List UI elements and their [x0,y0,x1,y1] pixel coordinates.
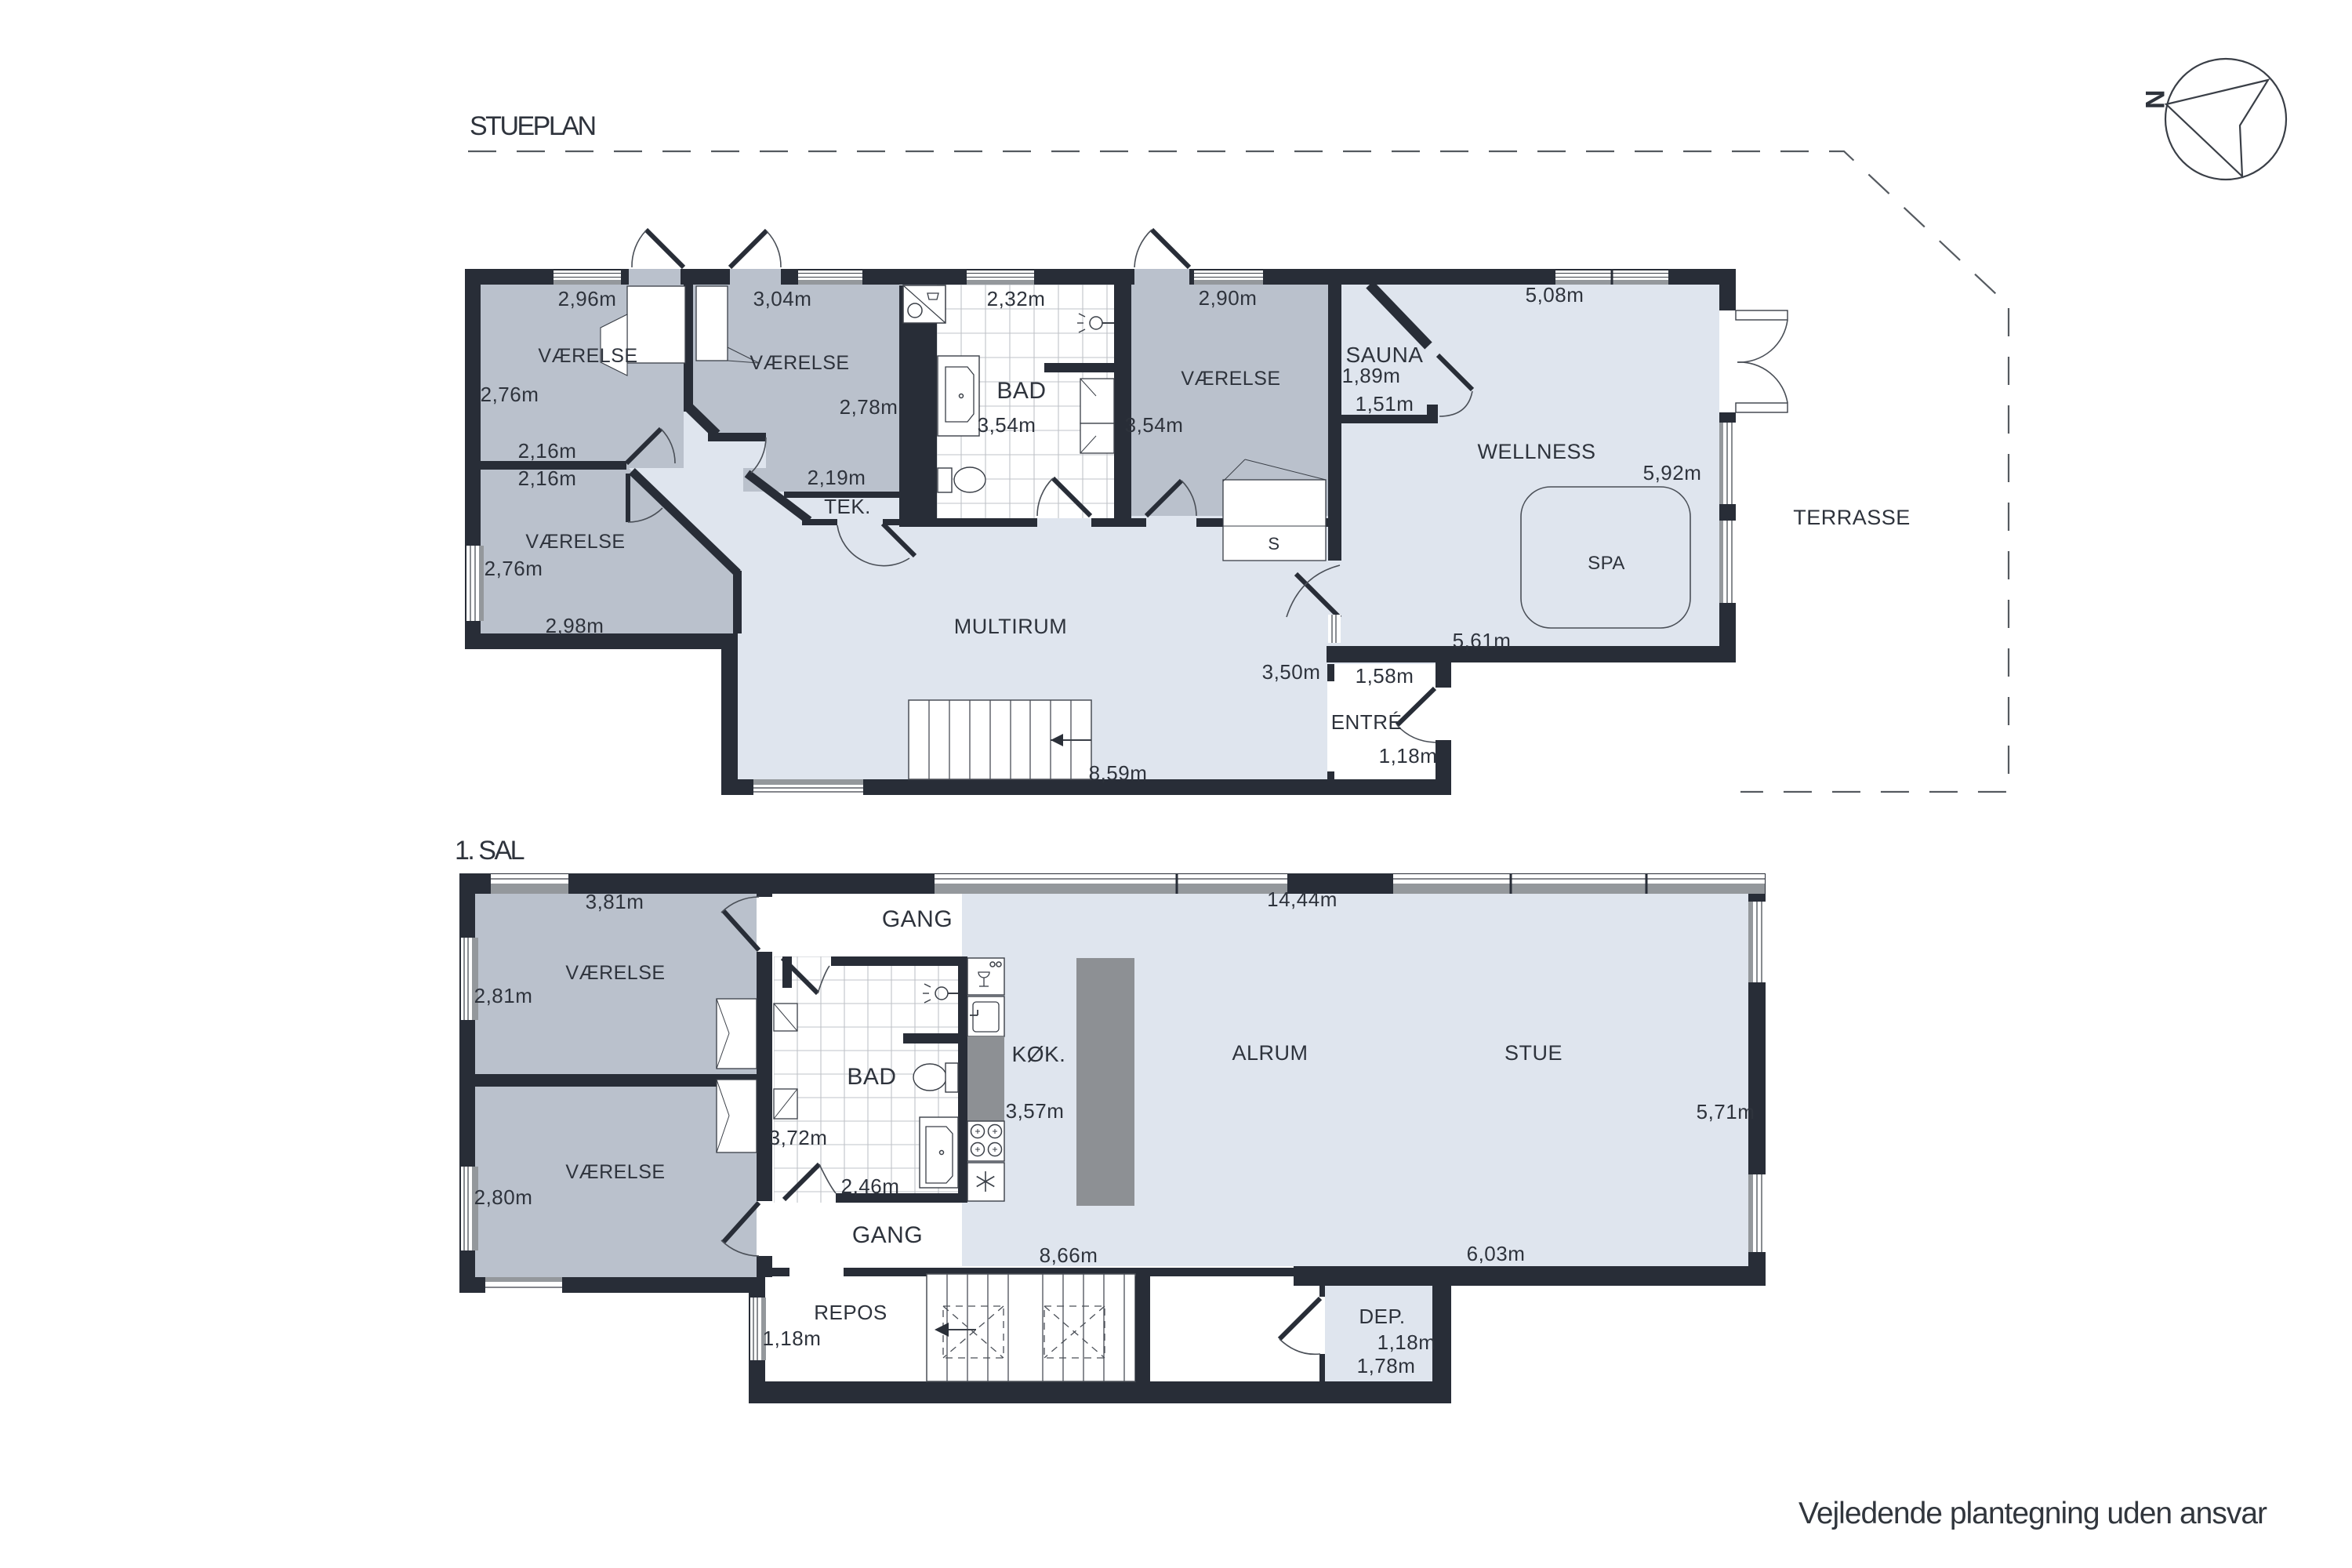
svg-text:2,96m: 2,96m [558,287,617,310]
svg-text:VÆRELSE: VÆRELSE [1181,368,1280,390]
svg-text:DEP.: DEP. [1359,1305,1405,1328]
svg-text:3,04m: 3,04m [753,287,812,310]
svg-text:5,92m: 5,92m [1643,461,1702,485]
svg-text:GANG: GANG [882,906,953,932]
svg-text:2,46m: 2,46m [841,1174,900,1198]
svg-text:8,59m: 8,59m [1089,761,1148,785]
svg-text:5,71m: 5,71m [1697,1100,1755,1123]
svg-text:2,81m: 2,81m [474,984,533,1007]
svg-text:1,89m: 1,89m [1342,364,1401,387]
svg-text:TEK.: TEK. [824,495,871,518]
svg-text:GANG: GANG [852,1222,923,1248]
svg-text:3,54m: 3,54m [1125,413,1184,437]
svg-text:1,18m: 1,18m [1379,744,1438,768]
svg-text:ALRUM: ALRUM [1232,1041,1308,1065]
svg-text:2,76m: 2,76m [481,383,539,406]
svg-text:N: N [2140,89,2169,109]
svg-text:3,81m: 3,81m [586,890,644,913]
svg-text:KØK.: KØK. [1012,1042,1066,1066]
svg-text:2,78m: 2,78m [840,395,898,419]
svg-text:2,98m: 2,98m [546,614,604,637]
svg-text:ENTRÉ: ENTRÉ [1331,710,1403,734]
svg-text:1,18m: 1,18m [1377,1330,1436,1354]
svg-text:2,90m: 2,90m [1199,286,1258,310]
svg-text:3,54m: 3,54m [978,413,1036,437]
svg-text:3,57m: 3,57m [1006,1099,1065,1123]
svg-text:1,18m: 1,18m [763,1327,822,1350]
svg-text:2,16m: 2,16m [518,439,577,463]
svg-text:VÆRELSE: VÆRELSE [525,531,625,553]
svg-text:2,16m: 2,16m [518,466,577,490]
svg-text:MULTIRUM: MULTIRUM [954,615,1067,638]
svg-text:TERRASSE: TERRASSE [1793,506,1911,529]
svg-text:5,61m: 5,61m [1453,629,1512,652]
svg-text:2,32m: 2,32m [987,287,1046,310]
svg-text:VÆRELSE: VÆRELSE [565,962,665,984]
svg-text:BAD: BAD [847,1064,896,1090]
svg-text:WELLNESS: WELLNESS [1477,440,1595,463]
svg-text:VÆRELSE: VÆRELSE [538,345,637,367]
svg-text:3,50m: 3,50m [1262,660,1321,684]
svg-text:VÆRELSE: VÆRELSE [750,352,849,374]
svg-text:STUEPLAN: STUEPLAN [470,111,595,141]
svg-text:6,03m: 6,03m [1467,1242,1526,1265]
svg-text:S: S [1268,534,1279,554]
svg-text:1,51m: 1,51m [1356,392,1414,416]
svg-text:SPA: SPA [1588,553,1625,574]
svg-text:5,08m: 5,08m [1526,283,1584,307]
svg-text:8,66m: 8,66m [1040,1243,1098,1267]
svg-text:STUE: STUE [1504,1041,1563,1065]
svg-text:1,58m: 1,58m [1356,664,1414,688]
svg-text:2,76m: 2,76m [485,557,543,580]
svg-text:3,72m: 3,72m [769,1126,828,1149]
svg-text:14,44m: 14,44m [1267,887,1338,911]
svg-text:VÆRELSE: VÆRELSE [565,1161,665,1183]
svg-text:Vejledende plantegning uden an: Vejledende plantegning uden ansvar [1798,1497,2267,1530]
svg-text:BAD: BAD [996,378,1046,404]
svg-text:2,19m: 2,19m [808,466,866,489]
svg-text:2,80m: 2,80m [474,1185,533,1209]
svg-text:1,78m: 1,78m [1357,1354,1416,1377]
svg-text:REPOS: REPOS [814,1301,887,1324]
svg-text:1. SAL: 1. SAL [455,836,524,866]
